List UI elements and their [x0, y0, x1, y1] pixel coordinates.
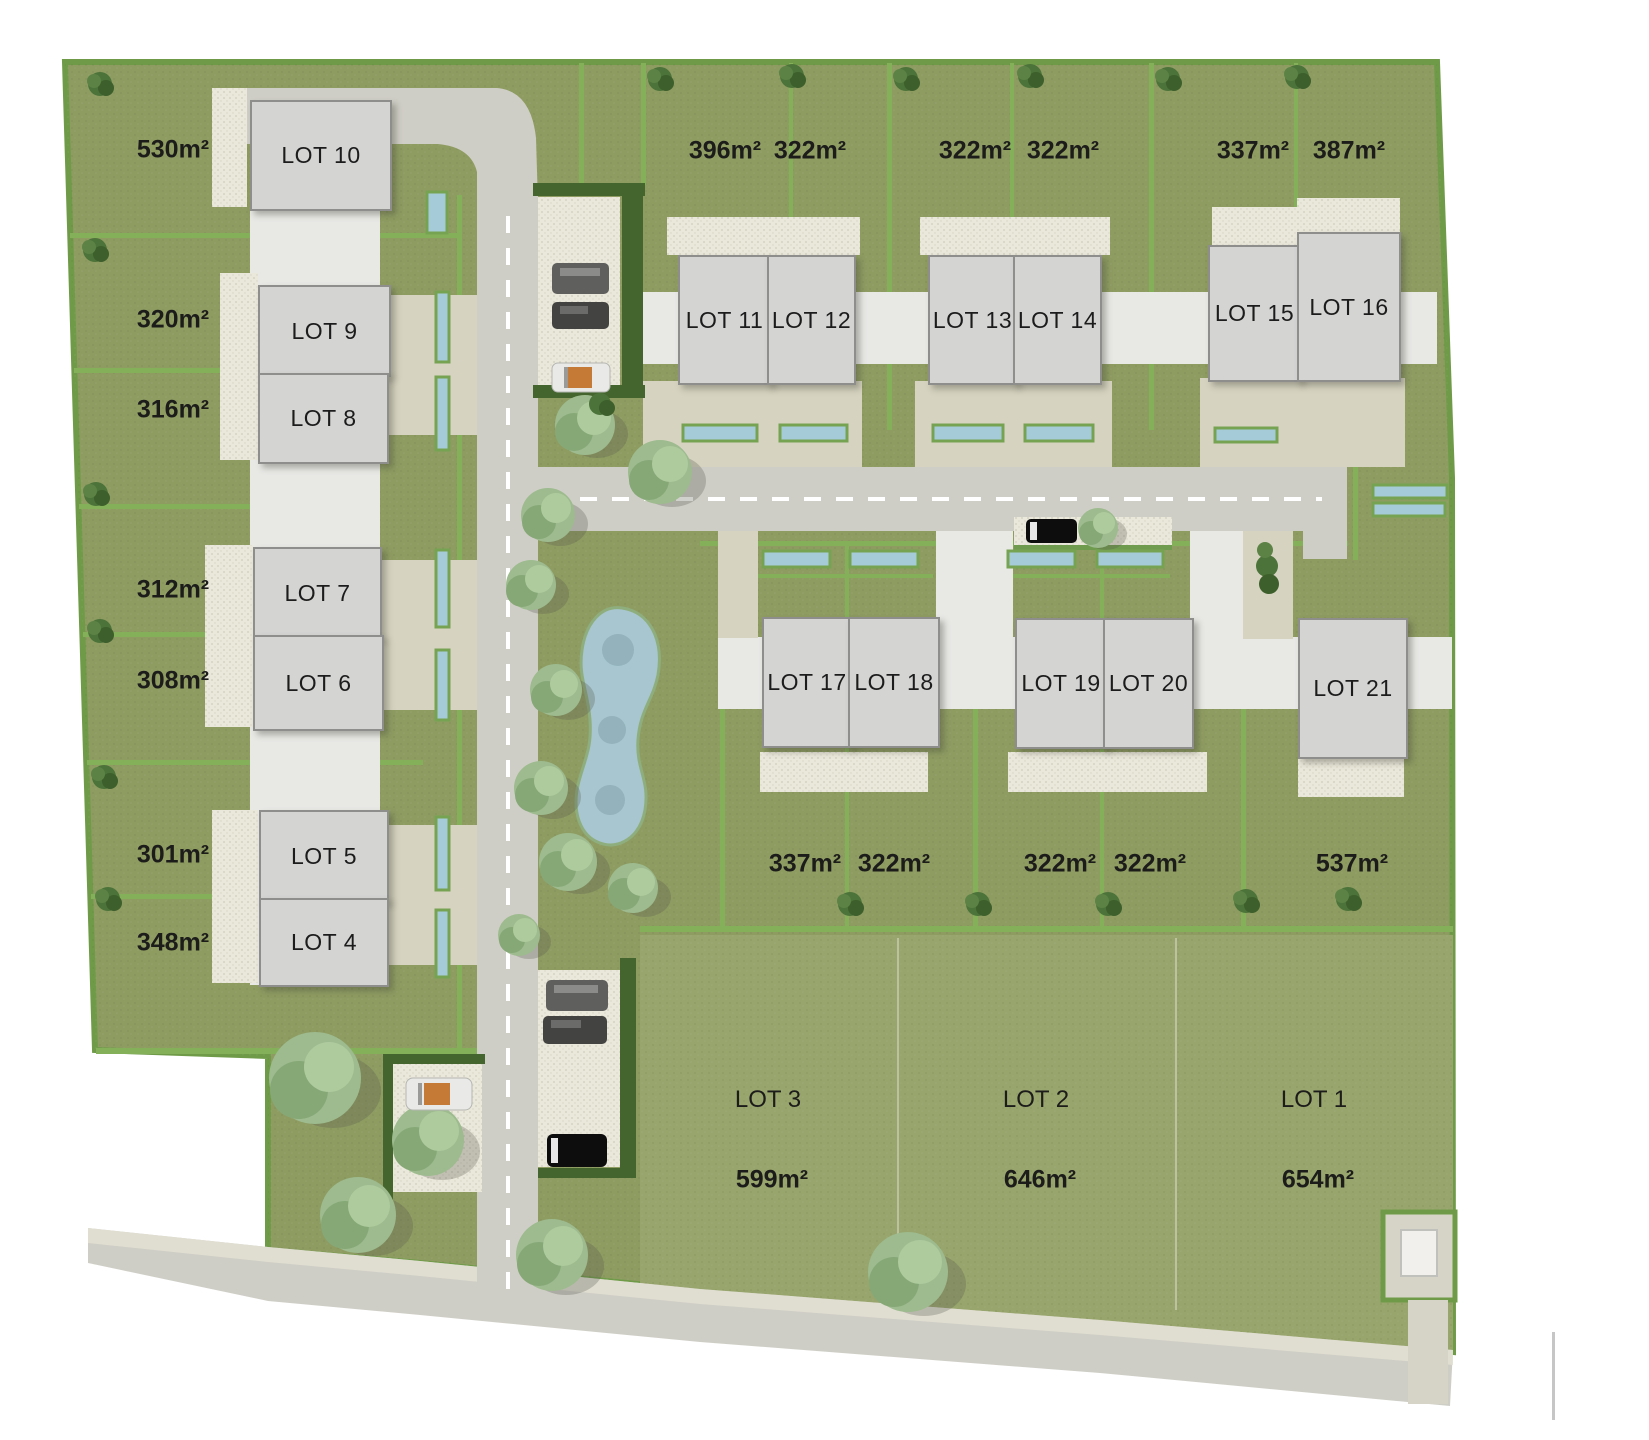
lot-label-lot-3: LOT 3	[735, 1086, 801, 1114]
area-label-lot-8: 316m²	[137, 396, 209, 425]
site-plan: LOT 10 LOT 9 LOT 8 LOT 7 LOT 6 LOT 5 LOT…	[0, 0, 1649, 1440]
house-label: LOT 14	[1018, 307, 1097, 334]
house-lot-6: LOT 6	[253, 635, 384, 731]
labels-layer: LOT 10 LOT 9 LOT 8 LOT 7 LOT 6 LOT 5 LOT…	[0, 0, 1649, 1440]
house-lot-11: LOT 11	[678, 255, 771, 385]
house-label: LOT 19	[1021, 670, 1100, 697]
house-label: LOT 15	[1215, 300, 1294, 327]
house-label: LOT 18	[854, 669, 933, 696]
house-lot-9: LOT 9	[258, 285, 391, 377]
area-label-lot-2: 646m²	[1004, 1166, 1076, 1195]
area-label-lot-15: 337m²	[1217, 137, 1289, 166]
area-label-lot-1: 654m²	[1282, 1166, 1354, 1195]
house-lot-5: LOT 5	[259, 810, 389, 902]
area-label-lot-20: 322m²	[1114, 850, 1186, 879]
house-label: LOT 10	[281, 142, 360, 169]
area-label-lot-4: 348m²	[137, 929, 209, 958]
area-label-lot-10: 530m²	[137, 136, 209, 165]
house-lot-20: LOT 20	[1103, 618, 1194, 749]
house-label: LOT 8	[291, 405, 357, 432]
area-label-lot-17: 337m²	[769, 850, 841, 879]
house-lot-8: LOT 8	[258, 373, 389, 464]
house-lot-21: LOT 21	[1298, 618, 1408, 759]
area-label-lot-21: 537m²	[1316, 850, 1388, 879]
house-label: LOT 5	[291, 843, 357, 870]
area-label-lot-5: 301m²	[137, 841, 209, 870]
area-label-lot-13: 322m²	[939, 137, 1011, 166]
area-label-lot-3: 599m²	[736, 1166, 808, 1195]
house-label: LOT 12	[772, 307, 851, 334]
house-label: LOT 4	[291, 929, 357, 956]
house-lot-12: LOT 12	[767, 255, 856, 385]
area-label-lot-18: 322m²	[858, 850, 930, 879]
house-label: LOT 7	[285, 580, 351, 607]
house-lot-4: LOT 4	[259, 898, 389, 987]
house-label: LOT 20	[1109, 670, 1188, 697]
house-lot-7: LOT 7	[253, 547, 382, 639]
house-label: LOT 16	[1309, 294, 1388, 321]
area-label-lot-9: 320m²	[137, 306, 209, 335]
house-label: LOT 6	[286, 670, 352, 697]
area-label-lot-6: 308m²	[137, 667, 209, 696]
lot-label-lot-1: LOT 1	[1281, 1086, 1347, 1114]
house-lot-14: LOT 14	[1013, 255, 1102, 385]
house-lot-16: LOT 16	[1297, 232, 1401, 382]
lot-label-lot-2: LOT 2	[1003, 1086, 1069, 1114]
area-label-lot-11: 396m²	[689, 137, 761, 166]
house-label: LOT 13	[933, 307, 1012, 334]
house-label: LOT 9	[292, 318, 358, 345]
house-label: LOT 11	[686, 307, 764, 334]
house-lot-10: LOT 10	[250, 100, 392, 211]
area-label-lot-7: 312m²	[137, 576, 209, 605]
area-label-lot-12: 322m²	[774, 137, 846, 166]
area-label-lot-16: 387m²	[1313, 137, 1385, 166]
house-lot-15: LOT 15	[1208, 245, 1301, 382]
area-label-lot-19: 322m²	[1024, 850, 1096, 879]
area-label-lot-14: 322m²	[1027, 137, 1099, 166]
house-label: LOT 17	[767, 669, 846, 696]
house-lot-18: LOT 18	[848, 617, 940, 748]
house-lot-17: LOT 17	[762, 617, 852, 748]
house-label: LOT 21	[1313, 675, 1392, 702]
house-lot-13: LOT 13	[928, 255, 1017, 385]
house-lot-19: LOT 19	[1015, 618, 1107, 749]
